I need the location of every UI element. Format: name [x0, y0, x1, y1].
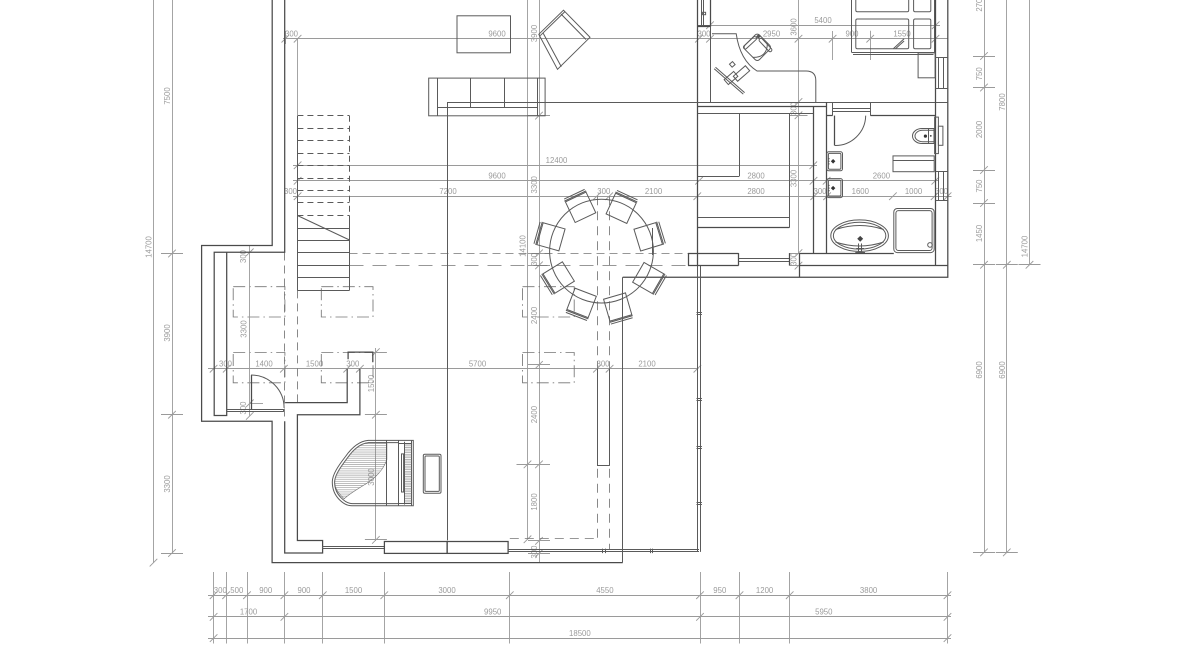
svg-text:500: 500: [230, 586, 244, 595]
svg-text:9950: 9950: [484, 608, 502, 617]
svg-text:2400: 2400: [530, 306, 539, 324]
svg-text:300: 300: [219, 360, 233, 369]
svg-text:300: 300: [697, 30, 711, 39]
svg-text:2100: 2100: [638, 360, 656, 369]
svg-text:3300: 3300: [530, 175, 539, 193]
svg-text:2100: 2100: [645, 187, 663, 196]
svg-text:2800: 2800: [747, 187, 765, 196]
svg-text:5400: 5400: [814, 16, 832, 25]
svg-text:300: 300: [813, 187, 827, 196]
svg-text:3300: 3300: [790, 169, 799, 187]
svg-text:5700: 5700: [469, 360, 487, 369]
svg-text:2800: 2800: [747, 172, 765, 181]
svg-text:300: 300: [214, 586, 228, 595]
svg-text:2950: 2950: [763, 30, 781, 39]
svg-text:300: 300: [597, 187, 611, 196]
svg-text:12400: 12400: [546, 156, 568, 165]
svg-text:3900: 3900: [163, 324, 172, 342]
svg-text:2000: 2000: [975, 120, 984, 138]
svg-text:300: 300: [285, 30, 299, 39]
svg-text:300: 300: [284, 187, 298, 196]
svg-text:14700: 14700: [1021, 235, 1030, 257]
svg-text:3000: 3000: [438, 586, 456, 595]
svg-text:1400: 1400: [255, 360, 273, 369]
svg-text:6900: 6900: [975, 361, 984, 379]
svg-text:3300: 3300: [239, 320, 248, 338]
svg-text:7500: 7500: [163, 87, 172, 105]
svg-text:5950: 5950: [815, 608, 833, 617]
svg-text:300: 300: [790, 252, 799, 266]
svg-text:300: 300: [790, 101, 799, 115]
svg-text:2700: 2700: [975, 0, 984, 12]
svg-text:900: 900: [297, 586, 311, 595]
svg-text:1000: 1000: [905, 187, 923, 196]
svg-text:750: 750: [975, 67, 984, 81]
svg-text:300: 300: [935, 187, 949, 196]
svg-text:1800: 1800: [530, 493, 539, 511]
svg-text:2600: 2600: [873, 172, 891, 181]
svg-text:1500: 1500: [345, 586, 363, 595]
svg-text:6900: 6900: [998, 361, 1007, 379]
svg-text:300: 300: [346, 360, 360, 369]
svg-text:3800: 3800: [860, 586, 878, 595]
svg-text:300: 300: [239, 249, 248, 263]
svg-text:900: 900: [845, 30, 859, 39]
svg-text:18500: 18500: [569, 629, 591, 638]
svg-text:1700: 1700: [240, 608, 258, 617]
svg-text:14700: 14700: [145, 235, 154, 257]
svg-text:3600: 3600: [790, 18, 799, 36]
svg-text:300: 300: [530, 252, 539, 266]
svg-text:750: 750: [975, 179, 984, 193]
svg-text:1600: 1600: [852, 187, 870, 196]
svg-text:900: 900: [259, 586, 273, 595]
svg-text:300: 300: [239, 401, 248, 415]
svg-text:3900: 3900: [530, 24, 539, 42]
svg-text:3300: 3300: [163, 475, 172, 493]
svg-text:9600: 9600: [488, 30, 506, 39]
svg-text:9600: 9600: [488, 172, 506, 181]
svg-text:2400: 2400: [530, 405, 539, 423]
svg-text:950: 950: [713, 586, 727, 595]
svg-text:7800: 7800: [998, 93, 1007, 111]
svg-text:4550: 4550: [596, 586, 614, 595]
svg-text:1450: 1450: [975, 224, 984, 242]
svg-text:300: 300: [596, 360, 610, 369]
svg-text:1200: 1200: [756, 586, 774, 595]
svg-text:7200: 7200: [439, 187, 457, 196]
